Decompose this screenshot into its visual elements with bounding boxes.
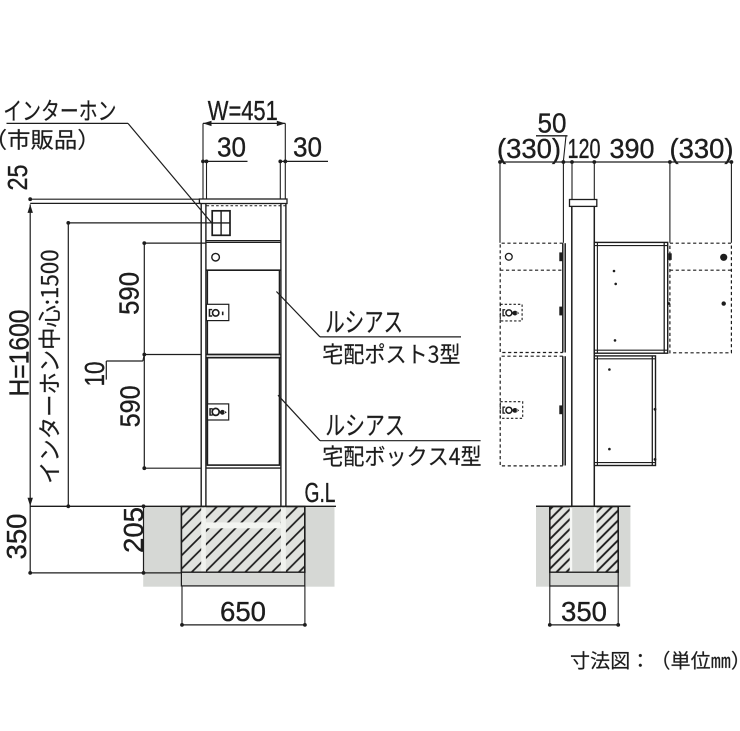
svg-text:590: 590 [114,272,145,315]
svg-text:G.L: G.L [305,477,336,508]
svg-text:25: 25 [2,165,33,191]
svg-text:350: 350 [1,514,32,560]
svg-text:650: 650 [220,596,266,627]
svg-text:205: 205 [118,507,149,553]
svg-text:(330): (330) [497,133,561,164]
svg-text:30: 30 [217,132,246,163]
svg-text:H=1600: H=1600 [4,310,35,397]
svg-text:W=451: W=451 [208,95,278,126]
svg-text:10: 10 [79,362,110,387]
svg-text:590: 590 [114,385,145,427]
svg-text:390: 390 [610,133,655,164]
svg-text:(330): (330) [670,133,734,164]
svg-text:30: 30 [293,132,322,163]
svg-text:350: 350 [561,596,607,627]
svg-text:120: 120 [568,133,601,164]
